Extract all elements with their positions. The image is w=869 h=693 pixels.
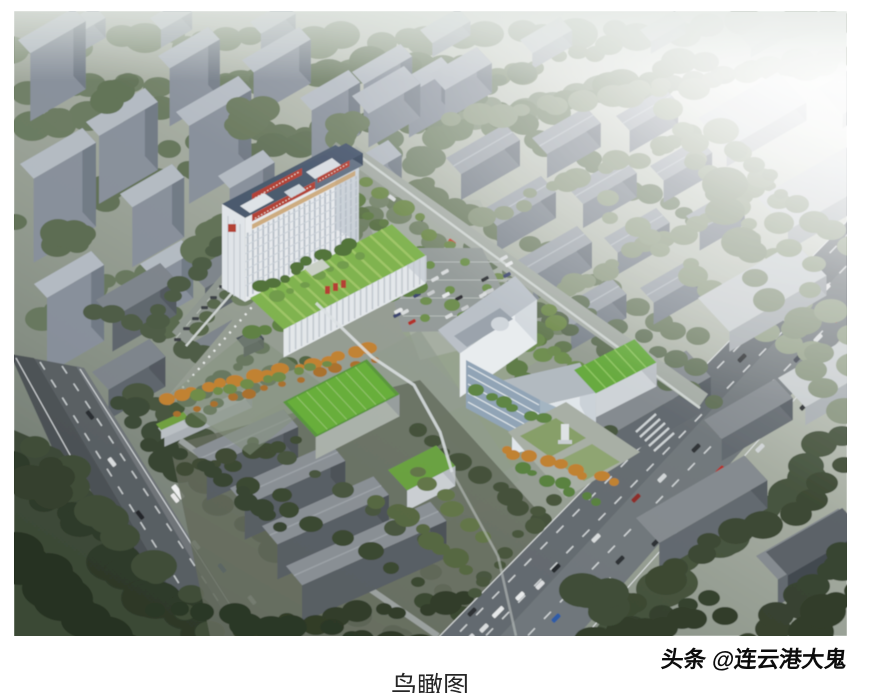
svg-text:鸟瞰图: 鸟瞰图: [391, 671, 469, 693]
svg-text:头条 @连云港大鬼: 头条 @连云港大鬼: [660, 646, 849, 672]
